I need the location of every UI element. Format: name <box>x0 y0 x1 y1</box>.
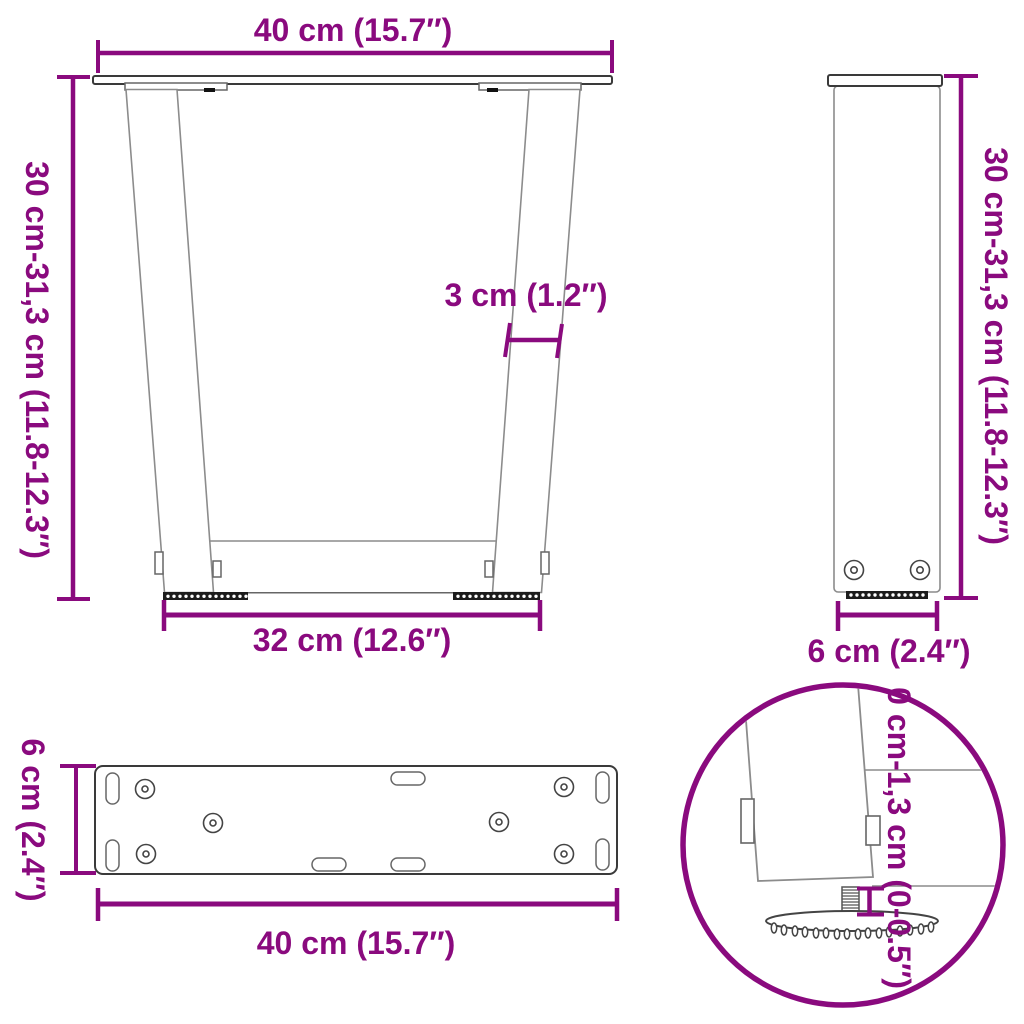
leg-tabs <box>155 552 549 577</box>
side-depth-dimension <box>838 601 937 631</box>
front-height-label: 30 cm-31,3 cm (11.8-12.3″) <box>21 161 53 559</box>
dimension-diagram: 40 cm (15.7″) 30 cm-31,3 cm (11.8-12.3″)… <box>0 0 1024 1024</box>
detail-leg <box>743 672 873 881</box>
foot-detail-view <box>683 672 1004 1005</box>
left-foot-serration <box>163 592 248 600</box>
plate-top-view <box>60 766 617 921</box>
side-height-label: 30 cm-31,3 cm (11.8-12.3″) <box>980 147 1012 545</box>
side-height-dimension <box>944 76 978 598</box>
front-view <box>57 40 612 631</box>
front-height-dimension <box>57 77 90 599</box>
bracket-tab-right <box>487 88 498 92</box>
front-bottom-width-label: 32 cm (12.6″) <box>253 624 452 656</box>
right-foot-serration <box>453 592 540 600</box>
plate-depth-dimension <box>60 766 96 873</box>
technical-drawing <box>0 0 1024 1024</box>
bracket-tab-left <box>204 88 215 92</box>
foot-adjustment-label: 0 cm-1,3 cm (0-0.5″) <box>883 687 915 989</box>
plate-depth-label: 6 cm (2.4″) <box>17 739 49 902</box>
leg-thickness-label: 3 cm (1.2″) <box>445 279 608 311</box>
front-top-width-label: 40 cm (15.7″) <box>254 14 453 46</box>
plate-width-dimension <box>98 888 617 921</box>
plate-width-label: 40 cm (15.7″) <box>257 927 456 959</box>
side-view <box>828 75 978 631</box>
left-leg <box>126 90 214 593</box>
side-leg-body <box>834 86 940 592</box>
side-top-plate <box>828 75 942 86</box>
side-depth-label: 6 cm (2.4″) <box>808 635 971 667</box>
mounting-plate <box>95 766 617 874</box>
side-foot-serration <box>846 591 928 599</box>
